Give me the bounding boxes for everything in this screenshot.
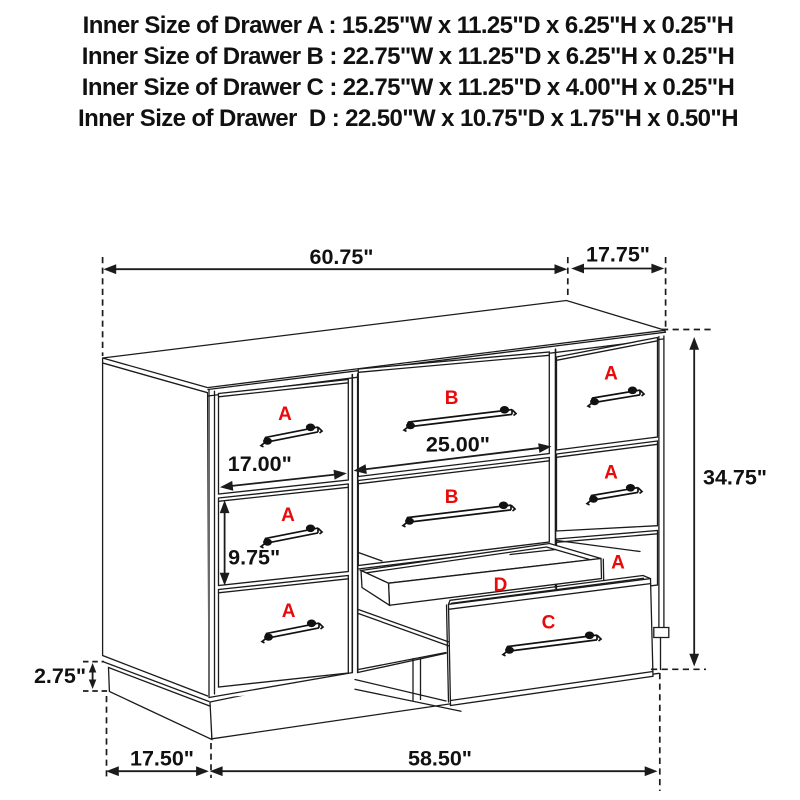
svg-text:Inner Size of Drawer B : 22.75: Inner Size of Drawer B : 22.75"W x 11.25… bbox=[82, 43, 735, 70]
svg-text:17.75": 17.75" bbox=[586, 243, 650, 267]
svg-text:A: A bbox=[282, 601, 296, 622]
svg-text:A: A bbox=[611, 552, 625, 573]
svg-text:Inner Size of Drawer A : 15.25: Inner Size of Drawer A : 15.25"W x 11.25… bbox=[83, 12, 734, 39]
svg-text:60.75": 60.75" bbox=[310, 245, 374, 269]
svg-text:A: A bbox=[278, 404, 292, 425]
svg-text:B: B bbox=[445, 487, 459, 508]
svg-text:C: C bbox=[542, 612, 556, 633]
svg-text:2.75": 2.75" bbox=[34, 664, 86, 688]
svg-text:A: A bbox=[604, 364, 618, 385]
svg-text:34.75": 34.75" bbox=[703, 465, 767, 489]
svg-text:Inner Size of Drawer C : 22.75: Inner Size of Drawer C : 22.75"W x 11.25… bbox=[82, 74, 735, 101]
svg-text:D: D bbox=[494, 575, 508, 596]
svg-text:58.50": 58.50" bbox=[408, 747, 472, 771]
svg-text:9.75": 9.75" bbox=[228, 545, 280, 569]
svg-text:17.50": 17.50" bbox=[130, 747, 194, 771]
svg-text:B: B bbox=[445, 388, 459, 409]
svg-text:A: A bbox=[604, 462, 618, 483]
svg-text:17.00": 17.00" bbox=[228, 452, 292, 476]
svg-text:25.00": 25.00" bbox=[426, 433, 490, 457]
svg-text:A: A bbox=[281, 505, 295, 526]
svg-text:Inner Size of Drawer D : 22.5: Inner Size of Drawer D : 22.50"W x 10.75… bbox=[78, 105, 738, 132]
